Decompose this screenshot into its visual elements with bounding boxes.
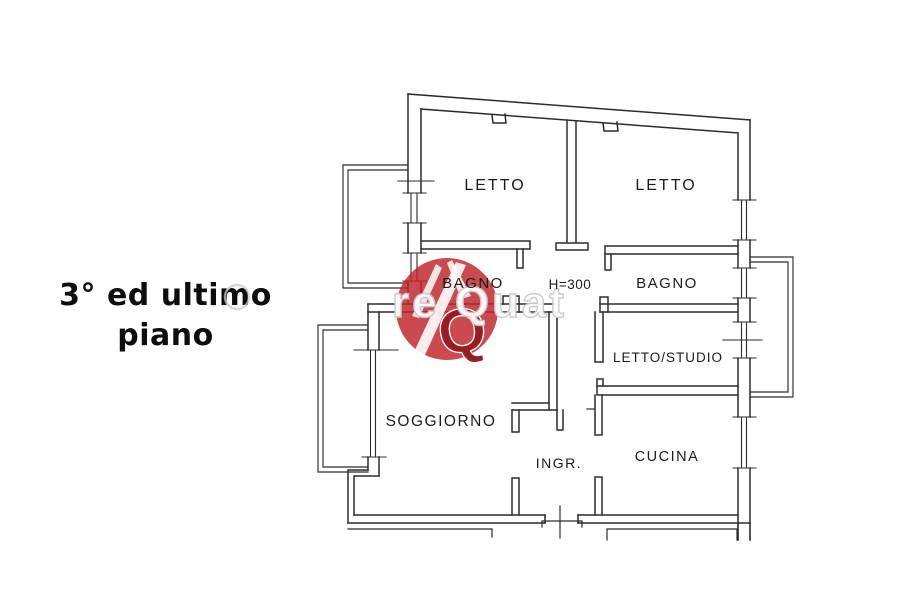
balcony-right xyxy=(750,257,793,397)
ceiling-height-annotation: H=300 xyxy=(549,277,592,292)
window-letto-2 xyxy=(733,200,756,240)
window-soggiorno xyxy=(354,350,398,457)
room-label-ingresso: INGR. xyxy=(536,455,582,471)
room-label-bagno-1: BAGNO xyxy=(442,275,504,292)
window-bagno-2 xyxy=(733,268,756,298)
room-label-letto-1: LETTO xyxy=(464,177,525,194)
room-label-letto-studio: LETTO/STUDIO xyxy=(613,350,723,365)
window-letto-1 xyxy=(398,181,434,223)
entrance-door xyxy=(542,506,582,538)
room-label-soggiorno: SOGGIORNO xyxy=(386,413,497,430)
floor-plan-page: 3° ed ultimo piano xyxy=(0,0,900,600)
floor-plan-drawing: Q re Quat LETTO LETTO BAGNO H=300 BAGNO … xyxy=(0,0,900,600)
agency-watermark: Q re Quat xyxy=(225,258,567,369)
door-threshold xyxy=(542,521,582,527)
balcony-top-left xyxy=(343,165,408,288)
balcony-left xyxy=(318,325,368,472)
room-label-letto-2: LETTO xyxy=(635,177,696,194)
landing-lines xyxy=(348,523,750,540)
watermark-ring-icon xyxy=(225,285,249,309)
window-cucina xyxy=(733,417,756,468)
room-label-cucina: CUCINA xyxy=(635,449,700,465)
room-label-bagno-2: BAGNO xyxy=(636,275,698,292)
window-letto-studio xyxy=(723,322,762,358)
